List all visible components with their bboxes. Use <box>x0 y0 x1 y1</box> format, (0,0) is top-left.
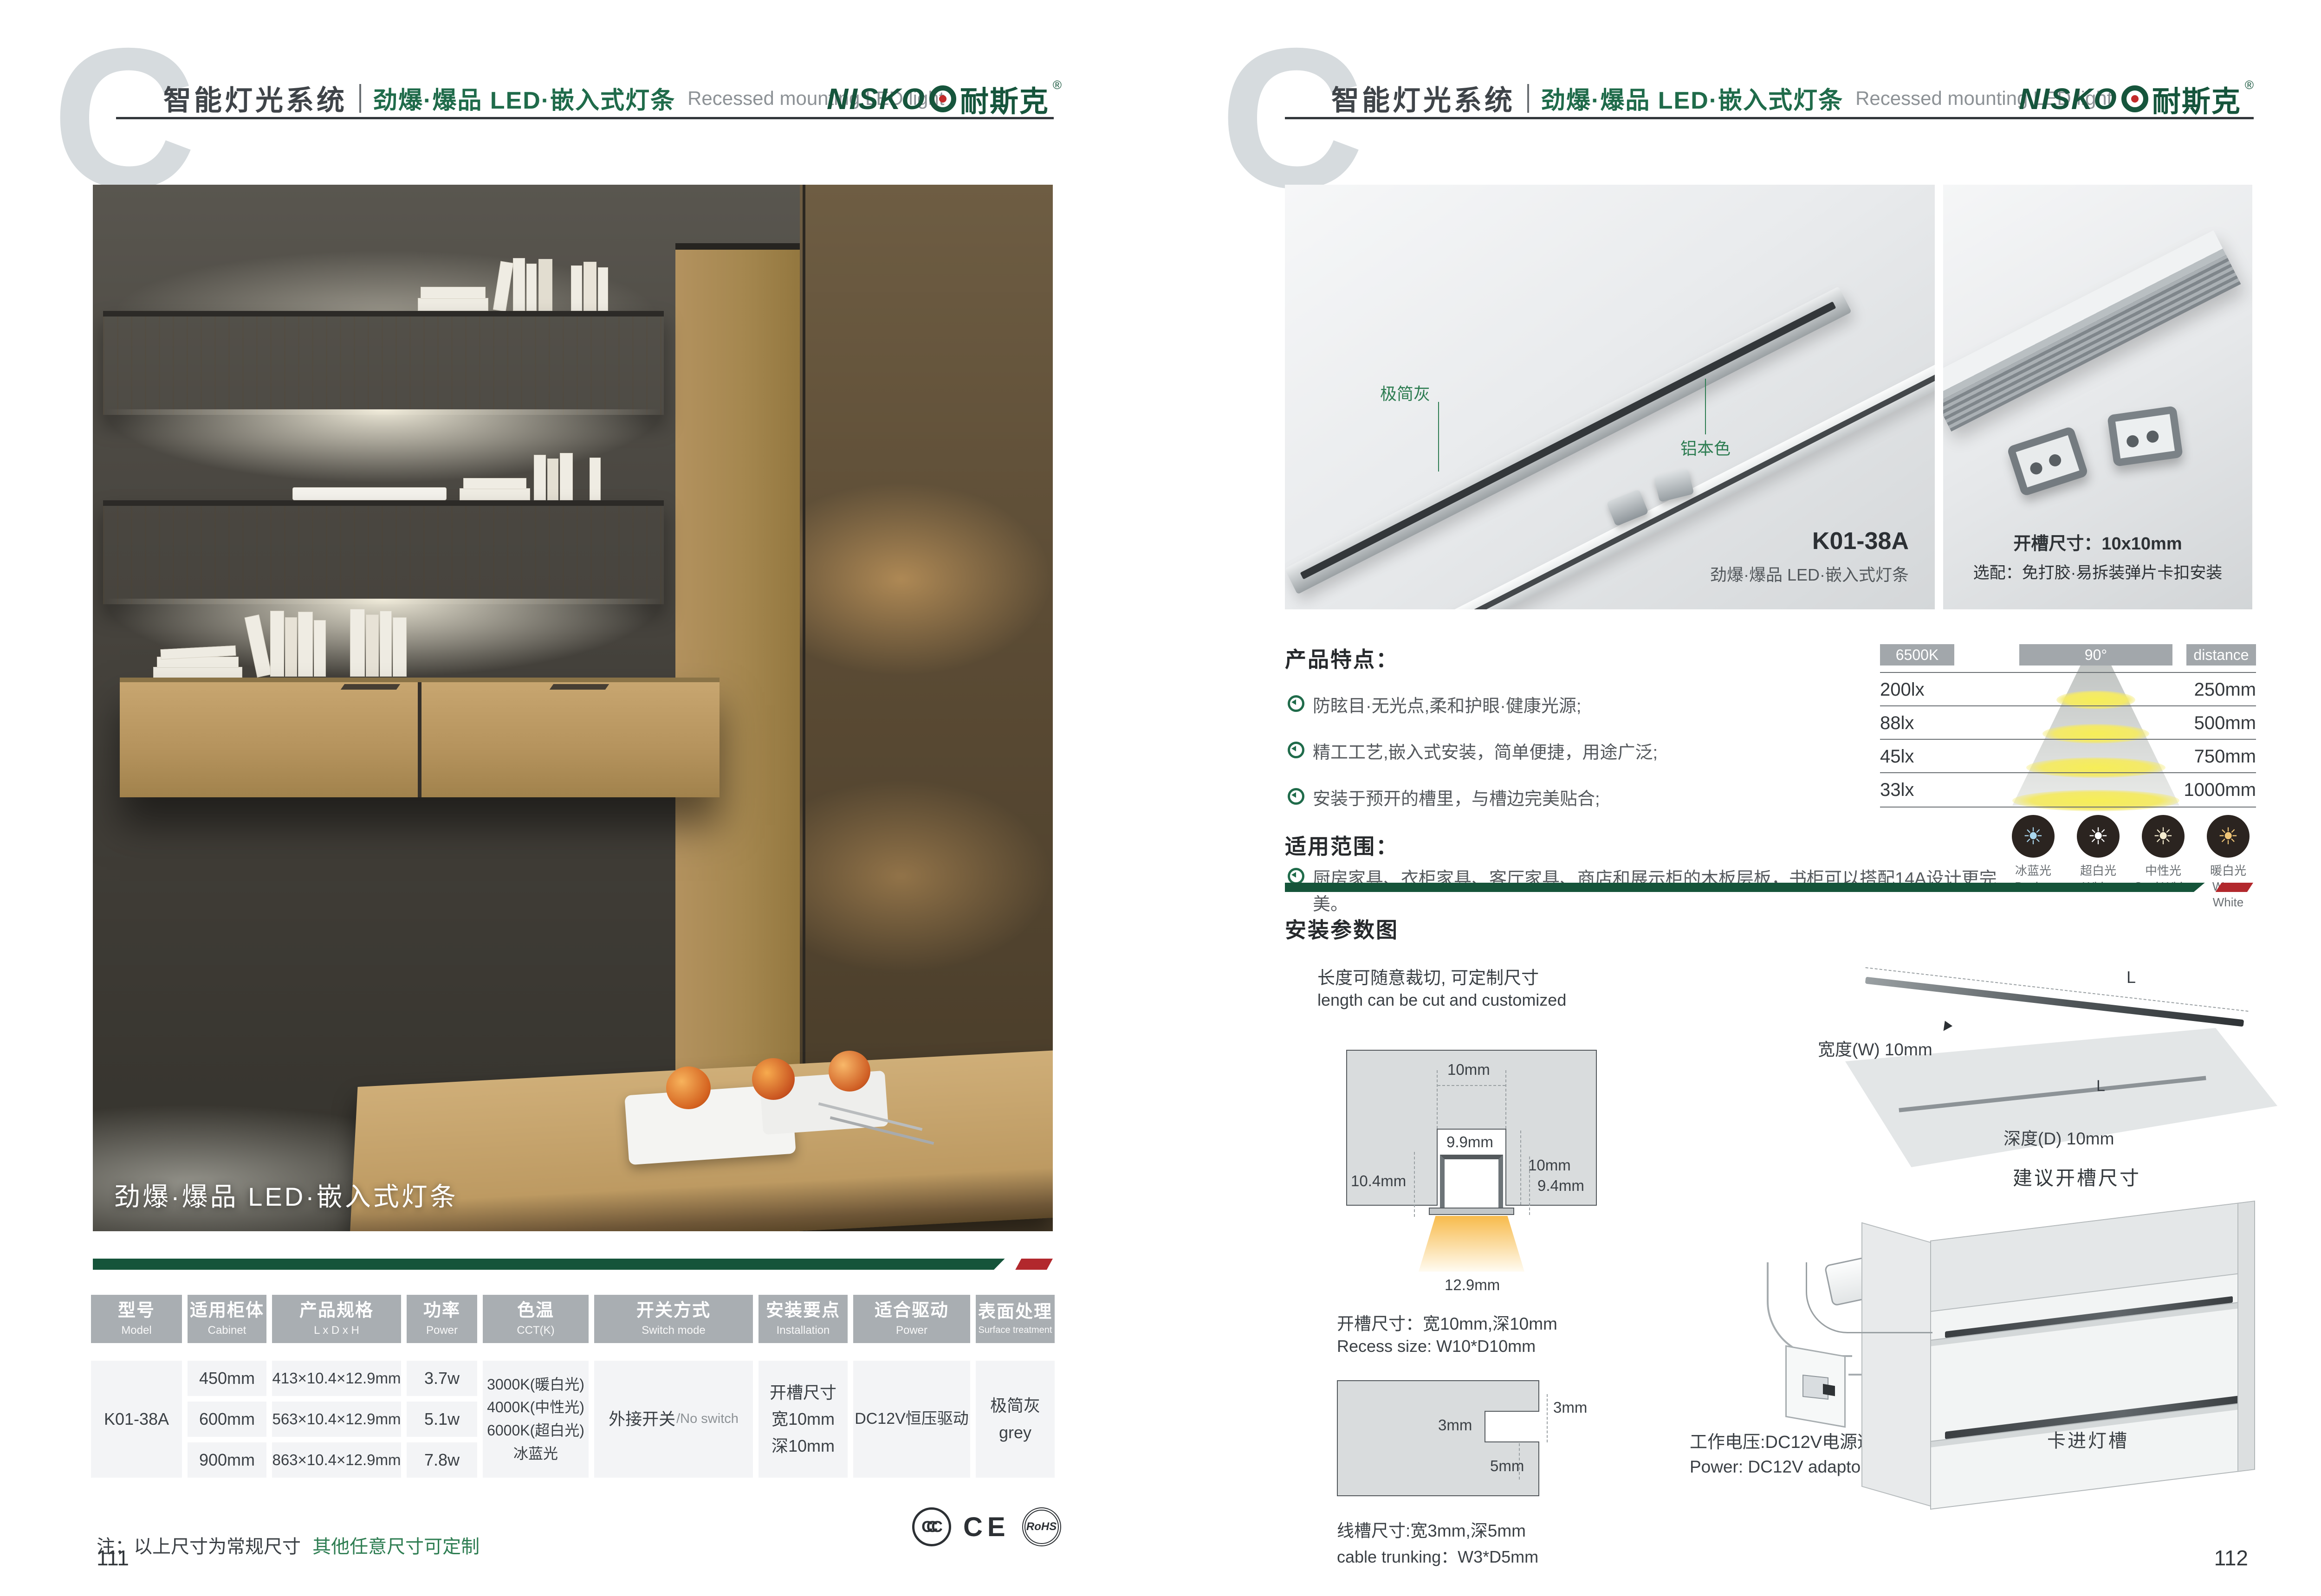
brand-logo: NISKO 耐斯克 ® <box>827 78 1062 120</box>
cert-icons: CCC CE RoHS <box>912 1507 1061 1546</box>
lux-row: 200lx 250mm <box>1880 672 2256 706</box>
shelf-middle <box>103 500 664 604</box>
col-header: 产品规格 L x D x H <box>272 1295 401 1343</box>
recess-note-cn: 开槽尺寸：宽10mm,深10mm <box>1337 1310 1557 1335</box>
feature-text: 安装于预开的槽里，与槽边完美贴合; <box>1313 784 1600 810</box>
sun-icon: ☀ <box>2077 815 2120 858</box>
profile-body <box>1440 1155 1503 1208</box>
dim-right-height: 9.4mm <box>1537 1177 1584 1195</box>
cct-badge: 6500K <box>1880 644 1954 666</box>
col-header: 型号 Model <box>91 1295 182 1343</box>
cabinet-back-panel <box>1931 1202 2254 1312</box>
sun-icon: ☀ <box>2207 815 2250 858</box>
led-strip-gray <box>1285 286 1852 594</box>
detail-line1: 开槽尺寸：10x10mm <box>1943 529 2252 555</box>
page-header: 智能灯光系统 劲爆·爆品 LED·嵌入式灯条 Recessed mounting… <box>1331 78 2112 118</box>
ccc-text: CCC <box>921 1518 942 1536</box>
light-mode-cool-white: ☀ 中性光 Cool White <box>2133 815 2193 910</box>
col-header-en: Cabinet <box>208 1324 246 1337</box>
col-header-en: L x D x H <box>314 1324 359 1337</box>
dim-trunk-width: 3mm <box>1438 1416 1472 1434</box>
col-header: 色温 CCT(K) <box>483 1295 589 1343</box>
lux-row: 45lx 750mm <box>1880 739 2256 773</box>
model-code: K01-38A <box>1812 527 1909 555</box>
rohs-cert-icon: RoHS <box>1022 1507 1061 1546</box>
mode-cn: 冰蓝光 <box>2003 863 2063 879</box>
col-header-en: Switch mode <box>642 1324 705 1337</box>
header-subtitle: 劲爆·爆品 LED·嵌入式灯条 <box>373 81 675 116</box>
led-profile-closeup <box>1943 230 2241 432</box>
col-header: 安装要点 Installation <box>759 1295 848 1343</box>
spring-clip <box>2107 406 2183 467</box>
col-header: 功率 Power <box>407 1295 477 1343</box>
lux-distance-chart: 6500K 90° distance 200lx 250mm 88lx 500m… <box>1880 644 2256 807</box>
label-pointer <box>1438 402 1439 472</box>
install-line: 深10mm <box>772 1433 835 1460</box>
dim-guide <box>1505 1070 1506 1129</box>
header-title: 智能灯光系统 <box>1331 78 1515 118</box>
brand-logo-cn: 耐斯克 <box>960 78 1049 120</box>
board-caption: 建议开槽尺寸 <box>2013 1163 2141 1191</box>
registered-mark: ® <box>2245 78 2254 92</box>
cell-surface: 极简灰 grey <box>976 1361 1055 1478</box>
light-mode-white: ☀ 超白光 White <box>2068 815 2128 910</box>
cell-cct: 3000K(暖白光) 4000K(中性光) 6000K(超白光) 冰蓝光 <box>483 1361 589 1478</box>
table-col-cabinet: 适用柜体 Cabinet 450mm 600mm 900mm <box>188 1295 266 1506</box>
peach <box>829 1051 870 1092</box>
led-strip-mini <box>1865 977 2244 1027</box>
feature-bullet-icon <box>1288 695 1304 712</box>
feature-text: 精工工艺,嵌入式安装，简单便捷，用途广泛; <box>1313 738 1658 763</box>
board-length-label2: L <box>2096 1077 2105 1095</box>
drawer-handle <box>341 684 400 690</box>
cabinet-label: 卡进灯槽 <box>2047 1426 2129 1453</box>
header-subtitle: 劲爆·爆品 LED·嵌入式灯条 <box>1541 81 1843 116</box>
product-photo-detail: 开槽尺寸：10x10mm 选配：免打胶·易拆装弹片卡扣安装 <box>1943 185 2252 609</box>
cell-cabinet: 600mm <box>188 1402 266 1437</box>
table-col-spec: 产品规格 L x D x H 413×10.4×12.9mm 563×10.4×… <box>272 1295 401 1506</box>
feature-item: 防眩目·无光点,柔和护眼·健康光源; <box>1288 691 1845 717</box>
detail-line2: 选配：免打胶·易拆装弹片卡扣安装 <box>1943 560 2252 583</box>
dim-slot-depth: 10mm <box>1528 1157 1571 1174</box>
ccc-cert-icon: CCC <box>912 1507 951 1546</box>
col-header-cn: 适用柜体 <box>190 1301 264 1321</box>
board-depth-label: 深度(D) 10mm <box>2003 1124 2114 1150</box>
page-number: 111 <box>97 1545 129 1570</box>
cabinet-cable <box>1806 1262 1932 1333</box>
cell-model: K01-38A <box>91 1361 182 1478</box>
surface-cn: 极简灰 <box>990 1392 1040 1419</box>
profile-flange <box>1429 1208 1514 1215</box>
lux-value: 45lx <box>1880 746 1914 767</box>
mode-cn: 暖白光 <box>2198 863 2258 879</box>
dim-guide <box>1520 1131 1521 1205</box>
accent-bar <box>93 1259 1053 1270</box>
cut-note-cn: 长度可随意裁切, 可定制尺寸 <box>1317 963 1539 989</box>
finish-label-aluminum: 铝本色 <box>1680 435 1731 459</box>
header-rule <box>1285 117 2254 119</box>
table-col-surface: 表面处理 Surface treatment 极简灰 grey <box>976 1295 1055 1506</box>
dim-inner-width: 9.9mm <box>1446 1133 1493 1151</box>
table-col-cct: 色温 CCT(K) 3000K(暖白光) 4000K(中性光) 6000K(超白… <box>483 1295 589 1506</box>
distance-value: 1000mm <box>2184 780 2256 801</box>
cable-trunking-diagram: 3mm 3mm 5mm <box>1337 1366 1597 1506</box>
label-pointer <box>1705 379 1706 434</box>
peach <box>752 1058 795 1100</box>
brand-bullseye-icon <box>929 85 956 112</box>
col-header: 开关方式 Switch mode <box>594 1295 753 1343</box>
cell-cabinet: 450mm <box>188 1361 266 1396</box>
peach <box>666 1066 711 1109</box>
dim-guide <box>1529 1157 1530 1215</box>
accent-bar <box>1285 883 2253 892</box>
scope-title: 适用范围： <box>1285 830 1399 860</box>
photo-caption: 劲爆·爆品 LED·嵌入式灯条 <box>114 1176 458 1214</box>
feature-bullet-icon <box>1288 788 1304 805</box>
finish-label-gray: 极简灰 <box>1380 381 1430 405</box>
slot-board-diagram: L ▼ ▼ L 宽度(W) 10mm 深度(D) 10mm 建议开槽尺寸 <box>1818 968 2277 1186</box>
feature-item: 精工工艺,嵌入式安装，简单便捷，用途广泛; <box>1288 738 1845 763</box>
table-col-switch: 开关方式 Switch mode 外接开关 /No switch <box>594 1295 753 1506</box>
mode-cn: 中性光 <box>2133 863 2193 879</box>
install-line: 宽10mm <box>772 1406 835 1433</box>
table-col-power: 功率 Power 3.7w 5.1w 7.8w <box>407 1295 477 1506</box>
sun-icon: ☀ <box>2012 815 2055 858</box>
brand-bullseye-icon <box>2121 85 2148 112</box>
cell-install: 开槽尺寸 宽10mm 深10mm <box>759 1361 848 1478</box>
spec-table: 型号 Model K01-38A 适用柜体 Cabinet 450mm 600m… <box>91 1295 1055 1506</box>
distance-value: 750mm <box>2194 746 2256 767</box>
books-decor <box>418 253 659 311</box>
header-rule <box>116 117 1054 119</box>
header-divider <box>359 84 361 113</box>
light-mode-warm-white: ☀ 暖白光 Warm White <box>2198 815 2258 910</box>
light-modes: ☀ 冰蓝光 Basket ☀ 超白光 White ☀ 中性光 Cool Whit… <box>2003 815 2258 910</box>
cct-line: 3000K(暖白光) <box>487 1373 584 1396</box>
cct-line: 冰蓝光 <box>513 1442 558 1466</box>
header-divider <box>1527 84 1529 113</box>
wall-socket <box>1785 1345 1846 1428</box>
surface-en: grey <box>999 1419 1031 1446</box>
cell-power: 7.8w <box>407 1442 477 1478</box>
col-header-en: Installation <box>777 1324 830 1337</box>
col-header-en: Power <box>426 1324 458 1337</box>
shelf-upper <box>103 311 664 415</box>
cct-line: 6000K(超白光) <box>487 1419 584 1442</box>
col-header-cn: 产品规格 <box>299 1301 374 1321</box>
sun-icon: ☀ <box>2142 815 2185 858</box>
feature-text: 防眩目·无光点,柔和护眼·健康光源; <box>1313 691 1581 717</box>
model-subtitle: 劲爆·爆品 LED·嵌入式灯条 <box>1710 562 1909 586</box>
cell-power: 3.7w <box>407 1361 477 1396</box>
rohs-text: RoHS <box>1026 1520 1057 1533</box>
col-header-cn: 安装要点 <box>766 1301 840 1321</box>
page-left: C 智能灯光系统 劲爆·爆品 LED·嵌入式灯条 Recessed mounti… <box>0 0 1168 1596</box>
cell-spec: 413×10.4×12.9mm <box>272 1361 401 1396</box>
brand-logo-text: NISKO <box>2019 82 2118 116</box>
table-col-driver: 适合驱动 Power DC12V恒压驱动 <box>853 1295 970 1506</box>
board-groove <box>1899 1076 2206 1112</box>
note-green: 其他任意尺寸可定制 <box>312 1537 480 1557</box>
col-header-en: Surface treatment <box>979 1325 1052 1336</box>
distance-badge: distance <box>2186 644 2256 666</box>
col-header: 表面处理 Surface treatment <box>976 1295 1055 1343</box>
cabinet-front <box>1930 1201 2255 1510</box>
insert-arrow-icon: ▼ <box>1935 1015 1958 1039</box>
dim-left-height: 10.4mm <box>1351 1172 1406 1190</box>
col-header-en: Model <box>121 1324 151 1337</box>
lux-value: 88lx <box>1880 713 1914 734</box>
board-length-label: L <box>2127 968 2136 987</box>
dim-slot-width: 10mm <box>1447 1061 1490 1079</box>
light-mode-ice-blue: ☀ 冰蓝光 Basket <box>2003 815 2063 910</box>
brand-logo-text: NISKO <box>827 82 926 116</box>
cell-cabinet: 900mm <box>188 1442 266 1478</box>
distance-value: 250mm <box>2194 679 2256 700</box>
ce-cert-icon: CE <box>963 1512 1010 1543</box>
brand-logo-cn: 耐斯克 <box>2152 78 2241 120</box>
col-header-en: Power <box>896 1324 927 1337</box>
col-header: 适合驱动 Power <box>853 1295 970 1343</box>
spring-clip <box>2006 426 2088 497</box>
install-title: 安装参数图 <box>1285 913 1399 944</box>
install-line: 开槽尺寸 <box>770 1379 836 1406</box>
col-header-cn: 型号 <box>118 1301 155 1321</box>
power-note-en: Power: DC12V adaptor <box>1690 1457 1866 1477</box>
drawer-handle <box>550 684 609 690</box>
trunk-note-en: cable trunking：W3*D5mm <box>1337 1544 1538 1568</box>
dim-trunk-depth: 5mm <box>1490 1457 1524 1475</box>
cabinet-shelf <box>1931 1300 2254 1346</box>
lux-row: 33lx 1000mm <box>1880 772 2256 808</box>
page-number: 112 <box>2214 1545 2248 1570</box>
col-header-en: CCT(K) <box>517 1324 554 1337</box>
board-width-label: 宽度(W) 10mm <box>1818 1035 1932 1060</box>
books-decor <box>153 637 251 679</box>
col-header: 适用柜体 Cabinet <box>188 1295 266 1343</box>
dim-guide <box>1547 1394 1548 1442</box>
cut-note-en: length can be cut and customized <box>1317 990 1566 1010</box>
cross-section-diagram: 10mm 10mm 9.9mm 10.4mm 9.4mm 12.9mm <box>1337 1026 1625 1295</box>
dim-guide <box>1414 1152 1415 1217</box>
dim-trunk-edge: 3mm <box>1553 1399 1587 1416</box>
table-note: 注：以上尺寸为常规尺寸 其他任意尺寸可定制 <box>97 1531 480 1558</box>
books-decor <box>292 445 645 500</box>
lux-row: 88lx 500mm <box>1880 705 2256 740</box>
col-header-cn: 适合驱动 <box>875 1301 949 1321</box>
angle-badge: 90° <box>2019 644 2172 666</box>
feature-item: 安装于预开的槽里，与槽边完美贴合; <box>1288 784 1845 810</box>
cell-power: 5.1w <box>407 1402 477 1437</box>
brand-logo: NISKO 耐斯克 ® <box>2019 78 2254 120</box>
cabinet-illustration: 卡进灯槽 <box>1861 1188 2279 1531</box>
product-photo-main: 极简灰 铝本色 K01-38A 劲爆·爆品 LED·嵌入式灯条 <box>1285 185 1935 609</box>
trunk-note-cn: 线槽尺寸:宽3mm,深5mm <box>1337 1517 1526 1542</box>
feature-bullet-icon <box>1288 742 1304 758</box>
trunk-notch <box>1485 1411 1539 1442</box>
distance-value: 500mm <box>2194 713 2256 734</box>
lux-value: 200lx <box>1880 679 1925 700</box>
cell-driver: DC12V恒压驱动 <box>853 1361 970 1478</box>
dim-guide <box>1437 1070 1438 1129</box>
dim-flange-width: 12.9mm <box>1445 1276 1500 1294</box>
hero-photo: 劲爆·爆品 LED·嵌入式灯条 <box>93 185 1053 1231</box>
table-col-install: 安装要点 Installation 开槽尺寸 宽10mm 深10mm <box>759 1295 848 1506</box>
scope-bullet-icon <box>1288 868 1304 885</box>
page-right: C 智能灯光系统 劲爆·爆品 LED·嵌入式灯条 Recessed mounti… <box>1168 0 2321 1596</box>
features-title: 产品特点： <box>1285 643 1399 673</box>
switch-en: /No switch <box>676 1410 739 1428</box>
lux-value: 33lx <box>1880 780 1914 801</box>
light-cone <box>1419 1216 1524 1272</box>
col-header-cn: 色温 <box>517 1301 554 1321</box>
sideboard <box>120 678 720 797</box>
col-header-cn: 表面处理 <box>978 1302 1052 1323</box>
cabinet-right-stile <box>2237 1202 2254 1471</box>
mode-cn: 超白光 <box>2068 863 2128 879</box>
cell-switch: 外接开关 /No switch <box>594 1361 753 1478</box>
cell-spec: 563×10.4×12.9mm <box>272 1402 401 1437</box>
col-header-cn: 功率 <box>423 1301 460 1321</box>
recess-note-en: Recess size: W10*D10mm <box>1337 1337 1536 1356</box>
switch-cn: 外接开关 <box>609 1408 675 1431</box>
registered-mark: ® <box>1053 78 1062 92</box>
col-header-cn: 开关方式 <box>636 1301 711 1321</box>
books-decor <box>251 602 511 677</box>
table-col-model: 型号 Model K01-38A <box>91 1295 182 1506</box>
cct-line: 4000K(中性光) <box>487 1396 584 1419</box>
dim-guide <box>1438 1085 1505 1086</box>
cell-spec: 863×10.4×12.9mm <box>272 1442 401 1478</box>
header-title: 智能灯光系统 <box>163 78 347 118</box>
